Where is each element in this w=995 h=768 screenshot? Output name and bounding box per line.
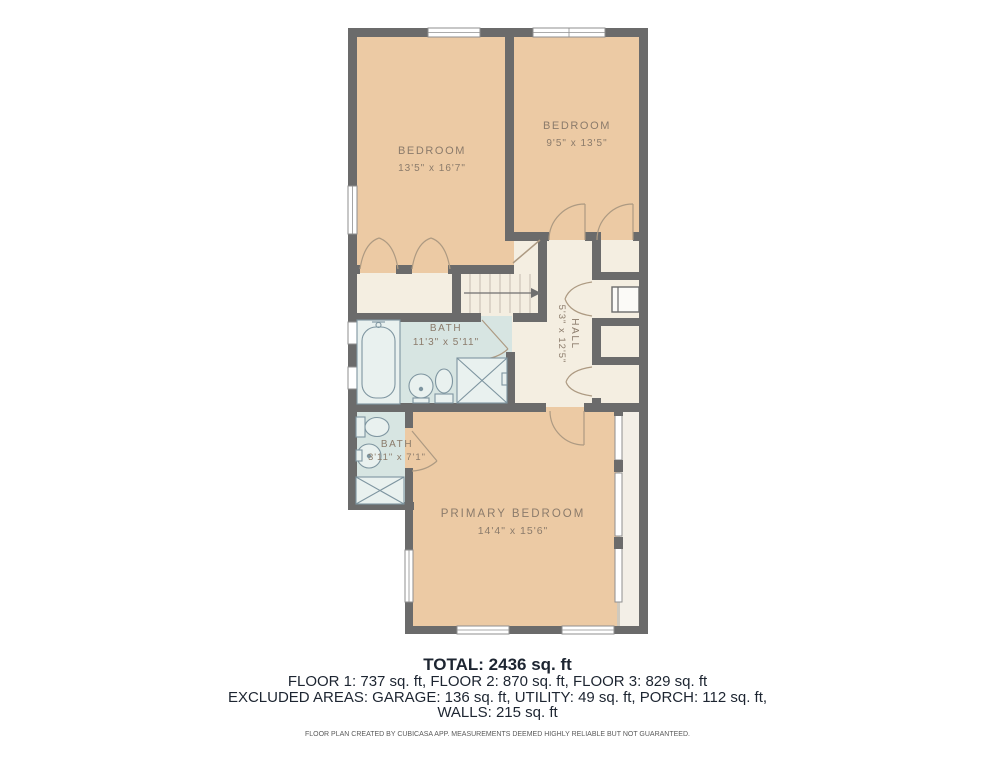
bath-main-dims: 11'3" x 5'11" <box>413 337 479 348</box>
excluded-areas: EXCLUDED AREAS: GARAGE: 136 sq. ft, UTIL… <box>0 690 995 706</box>
pedestal-sink <box>409 374 433 403</box>
toilet <box>356 417 389 437</box>
bedroom-1-dims: 13'5" x 16'7" <box>398 163 466 174</box>
total-area: TOTAL: 2436 sq. ft <box>0 656 995 674</box>
primary-bedroom-dims: 14'4" x 15'6" <box>478 525 549 537</box>
area-summary: TOTAL: 2436 sq. ft FLOOR 1: 737 sq. ft, … <box>0 656 995 739</box>
window <box>348 367 357 389</box>
bath-small-label: BATH <box>381 439 413 450</box>
hall-label: HALL <box>569 318 580 349</box>
water-heater <box>612 287 639 312</box>
primary-side-strip-fill <box>620 407 642 630</box>
bath-small-dims: 3'11" x 7'1" <box>368 452 426 463</box>
bedroom-2-dims: 9'5" x 13'5" <box>546 138 607 149</box>
disclaimer: FLOOR PLAN CREATED BY CUBICASA APP. MEAS… <box>0 731 995 739</box>
bedroom-1-label: BEDROOM <box>398 145 466 157</box>
window <box>348 322 357 344</box>
primary-bedroom-label: PRIMARY BEDROOM <box>441 508 586 520</box>
bathtub <box>357 320 400 404</box>
hall-dims: 5'3" x 12'5" <box>556 305 567 364</box>
floor-plan: BEDROOM 13'5" x 16'7" BEDROOM 9'5" x 13'… <box>0 0 995 650</box>
floor-plan-page: BEDROOM 13'5" x 16'7" BEDROOM 9'5" x 13'… <box>0 0 995 768</box>
walls-area: WALLS: 215 sq. ft <box>0 705 995 721</box>
window-wall <box>614 407 623 626</box>
bedroom-2-label: BEDROOM <box>543 120 611 132</box>
bedroom-2-fill <box>505 28 648 240</box>
floor-areas: FLOOR 1: 737 sq. ft, FLOOR 2: 870 sq. ft… <box>0 674 995 690</box>
shower <box>356 477 404 504</box>
bath-main-label: BATH <box>430 323 462 334</box>
toilet <box>435 369 453 403</box>
shower <box>457 358 507 403</box>
